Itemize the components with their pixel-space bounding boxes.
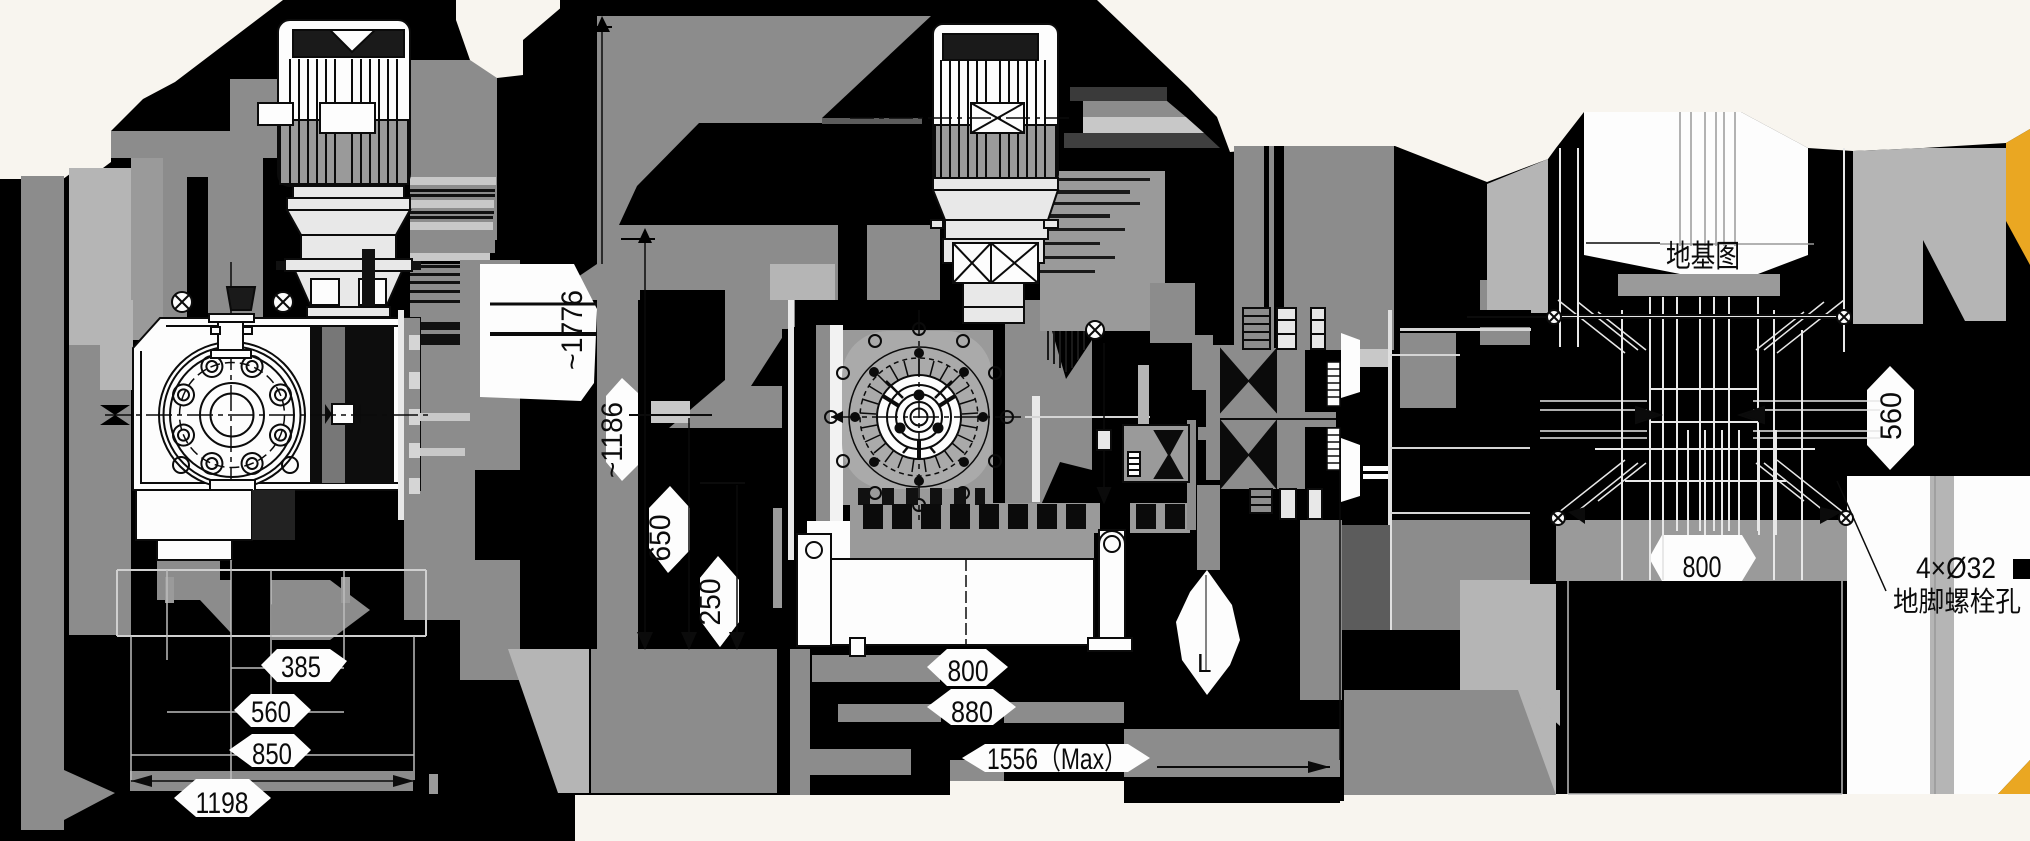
svg-text:地基图: 地基图 xyxy=(1666,239,1740,274)
svg-text:800: 800 xyxy=(948,655,989,688)
svg-text:385: 385 xyxy=(281,651,321,684)
svg-text:800: 800 xyxy=(1683,551,1722,584)
svg-text:~1186: ~1186 xyxy=(596,402,629,478)
svg-text:4×Ø32: 4×Ø32 xyxy=(1916,552,1996,585)
svg-text:650: 650 xyxy=(644,515,677,562)
svg-text:880: 880 xyxy=(951,696,993,729)
svg-text:1556（Max）: 1556（Max） xyxy=(987,743,1127,776)
svg-text:560: 560 xyxy=(1875,392,1908,440)
svg-text:250: 250 xyxy=(694,579,727,626)
svg-text:L: L xyxy=(1197,648,1211,678)
svg-text:地脚螺栓孔: 地脚螺栓孔 xyxy=(1893,586,2021,617)
svg-text:1198: 1198 xyxy=(196,787,249,820)
svg-text:~1776: ~1776 xyxy=(556,290,589,370)
svg-text:560: 560 xyxy=(251,696,291,729)
svg-text:850: 850 xyxy=(252,738,292,771)
